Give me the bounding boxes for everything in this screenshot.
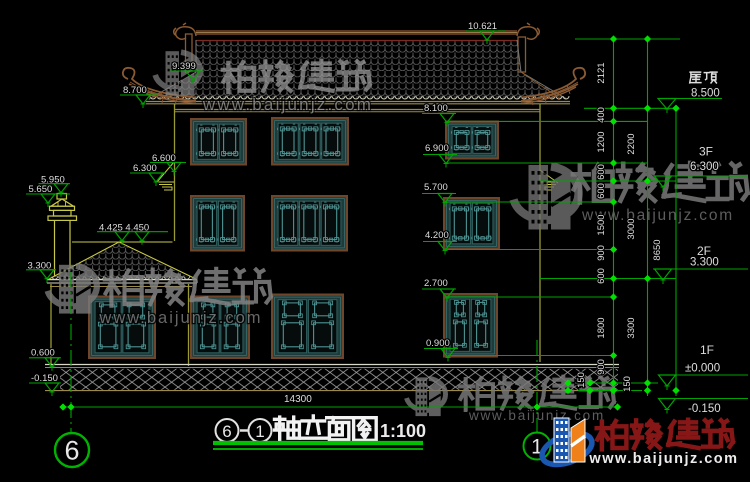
svg-text:600: 600 <box>596 268 607 284</box>
svg-text:±0.000: ±0.000 <box>685 363 720 375</box>
svg-text:900: 900 <box>596 245 607 261</box>
svg-text:4.200: 4.200 <box>425 230 449 241</box>
svg-text:0.600: 0.600 <box>31 347 55 358</box>
svg-text:150: 150 <box>622 376 633 392</box>
svg-text:8.700: 8.700 <box>123 85 147 96</box>
svg-text:6.300: 6.300 <box>690 161 719 173</box>
svg-text:-0.150: -0.150 <box>688 403 721 415</box>
svg-text:9.399: 9.399 <box>172 61 196 72</box>
svg-text:600: 600 <box>596 183 607 199</box>
svg-text:6.900: 6.900 <box>425 143 449 154</box>
svg-text:14300: 14300 <box>284 394 312 405</box>
svg-text:8650: 8650 <box>652 239 663 260</box>
svg-text:150: 150 <box>576 372 587 388</box>
svg-text:3300: 3300 <box>626 317 637 338</box>
svg-text:2121: 2121 <box>596 62 607 83</box>
svg-text:900: 900 <box>596 359 607 375</box>
svg-text:www.baijunjz.com: www.baijunjz.com <box>98 309 262 327</box>
svg-text:2.700: 2.700 <box>424 278 448 289</box>
svg-text:1: 1 <box>255 422 264 441</box>
svg-text:8.500: 8.500 <box>691 88 720 100</box>
svg-text:2200: 2200 <box>626 133 637 154</box>
svg-text:3.300: 3.300 <box>690 257 719 269</box>
svg-text:3000: 3000 <box>626 218 637 239</box>
svg-text:3F: 3F <box>699 145 713 159</box>
svg-text:10.621: 10.621 <box>468 21 497 32</box>
svg-text:600: 600 <box>596 164 607 180</box>
svg-text:www.baijunjz.com: www.baijunjz.com <box>588 451 738 467</box>
svg-text:1200: 1200 <box>596 131 607 152</box>
svg-text:6: 6 <box>222 422 231 441</box>
svg-text:-0.150: -0.150 <box>31 373 58 384</box>
svg-text:8.100: 8.100 <box>424 103 448 114</box>
svg-text:1500: 1500 <box>596 214 607 235</box>
svg-text:1:100: 1:100 <box>380 421 426 441</box>
svg-text:6: 6 <box>64 436 79 466</box>
svg-text:5.650: 5.650 <box>29 184 53 195</box>
svg-text:400: 400 <box>596 107 607 123</box>
svg-text:1800: 1800 <box>596 317 607 338</box>
svg-text:www.baijunjz.com: www.baijunjz.com <box>202 95 373 114</box>
svg-text:0.900: 0.900 <box>426 338 450 349</box>
svg-text:6.300: 6.300 <box>133 163 157 174</box>
svg-text:1F: 1F <box>700 343 714 357</box>
svg-text:5.700: 5.700 <box>424 182 448 193</box>
